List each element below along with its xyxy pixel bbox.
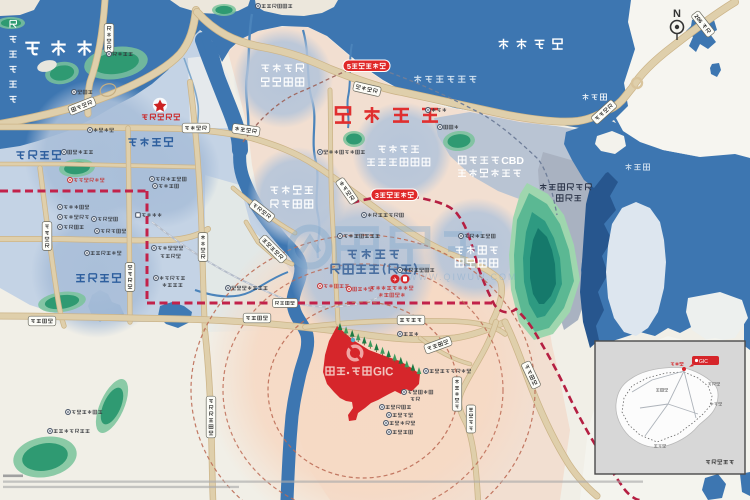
svg-text:GIC: GIC <box>699 359 708 365</box>
svg-text:5: 5 <box>347 62 351 71</box>
svg-text:N: N <box>673 8 681 20</box>
svg-text:3: 3 <box>375 191 379 200</box>
svg-text:WWW.QIWUW.COM: WWW.QIWUW.COM <box>408 272 517 282</box>
svg-text:CBD: CBD <box>501 155 524 167</box>
svg-text:GIC: GIC <box>373 367 393 379</box>
svg-text:✈: ✈ <box>392 277 397 284</box>
